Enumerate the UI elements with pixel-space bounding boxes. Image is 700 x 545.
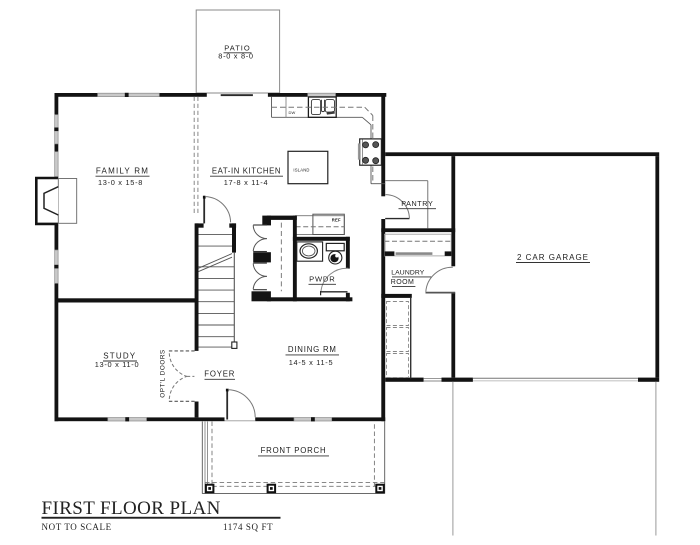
svg-text:LAUNDRY: LAUNDRY [391, 270, 424, 277]
svg-text:1174 SQ FT: 1174 SQ FT [223, 522, 273, 532]
svg-text:14-5 x 11-5: 14-5 x 11-5 [289, 358, 334, 367]
svg-text:EAT-IN KITCHEN: EAT-IN KITCHEN [212, 167, 281, 176]
svg-text:PWDR: PWDR [309, 275, 335, 284]
svg-text:2 CAR GARAGE: 2 CAR GARAGE [517, 253, 589, 262]
svg-text:17-8 x 11-4: 17-8 x 11-4 [224, 178, 269, 187]
svg-text:FRONT PORCH: FRONT PORCH [261, 446, 327, 455]
svg-text:8-0 x 8-0: 8-0 x 8-0 [218, 52, 253, 61]
svg-text:13-0 x 11-0: 13-0 x 11-0 [95, 360, 140, 369]
svg-text:DW: DW [288, 110, 295, 115]
svg-text:13-0 x 15-8: 13-0 x 15-8 [98, 178, 143, 187]
svg-text:NOT TO SCALE: NOT TO SCALE [42, 522, 112, 532]
svg-text:FAMILY RM: FAMILY RM [96, 167, 149, 176]
svg-text:ROOM: ROOM [391, 279, 414, 286]
svg-text:REF: REF [332, 217, 341, 222]
svg-text:PANTRY: PANTRY [401, 199, 433, 208]
svg-text:FOYER: FOYER [204, 370, 235, 379]
svg-text:DINING RM: DINING RM [288, 345, 337, 354]
svg-text:OPT'L DOORS: OPT'L DOORS [160, 349, 167, 397]
svg-text:ISLAND: ISLAND [293, 167, 309, 172]
svg-text:FIRST FLOOR PLAN: FIRST FLOOR PLAN [42, 498, 221, 519]
